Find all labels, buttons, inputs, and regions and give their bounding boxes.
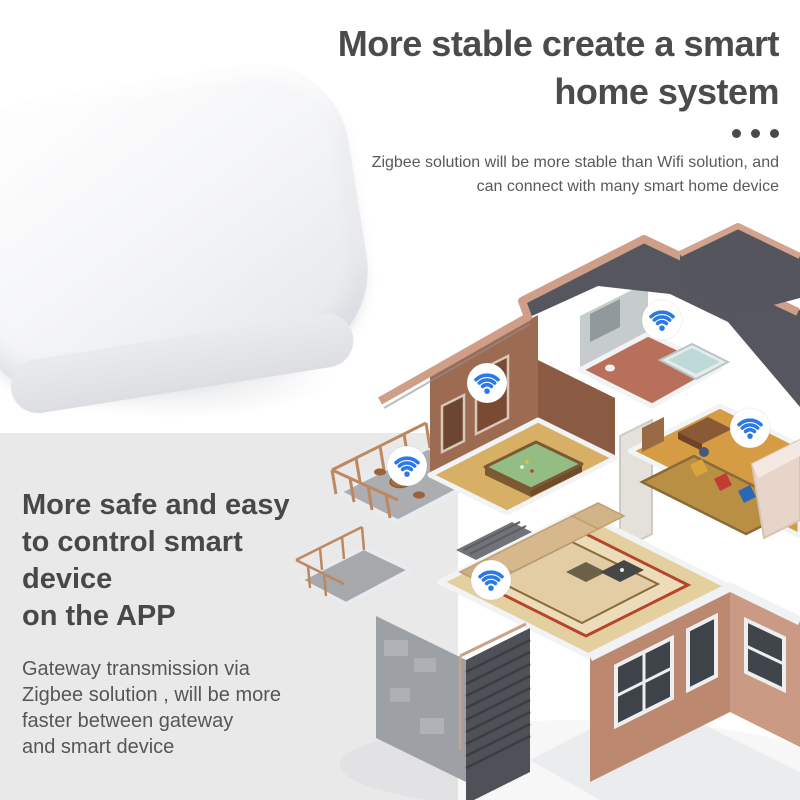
lower-terrace bbox=[296, 527, 410, 604]
hero-title-line-2: home system bbox=[338, 68, 779, 116]
hero-title: More stable create a smart home system bbox=[338, 20, 779, 116]
hero-title-line-1: More stable create a smart bbox=[338, 20, 779, 68]
balcony-chair bbox=[413, 491, 425, 498]
window bbox=[688, 616, 716, 690]
house-illustration bbox=[280, 220, 800, 800]
wifi-icon bbox=[642, 300, 682, 340]
balcony-chair bbox=[374, 468, 386, 475]
wifi-icon bbox=[387, 446, 427, 486]
desk-chair bbox=[699, 447, 709, 457]
bedroom bbox=[620, 406, 800, 550]
hero-subtitle-line-1: Zigbee solution will be more stable than… bbox=[338, 151, 779, 175]
wifi-icon bbox=[467, 363, 507, 403]
dot-icon bbox=[732, 129, 741, 138]
dot-icon bbox=[770, 129, 779, 138]
product-marketing-image: More stable create a smart home system Z… bbox=[0, 0, 800, 800]
hero-section: More stable create a smart home system Z… bbox=[338, 20, 779, 199]
wifi-icon bbox=[730, 408, 770, 448]
ellipsis-dots-icon bbox=[338, 129, 779, 138]
wifi-icon bbox=[471, 560, 511, 600]
hero-subtitle-line-2: can connect with many smart home device bbox=[338, 175, 779, 199]
hero-subtitle: Zigbee solution will be more stable than… bbox=[338, 151, 779, 199]
toilet bbox=[605, 365, 615, 372]
dot-icon bbox=[751, 129, 760, 138]
